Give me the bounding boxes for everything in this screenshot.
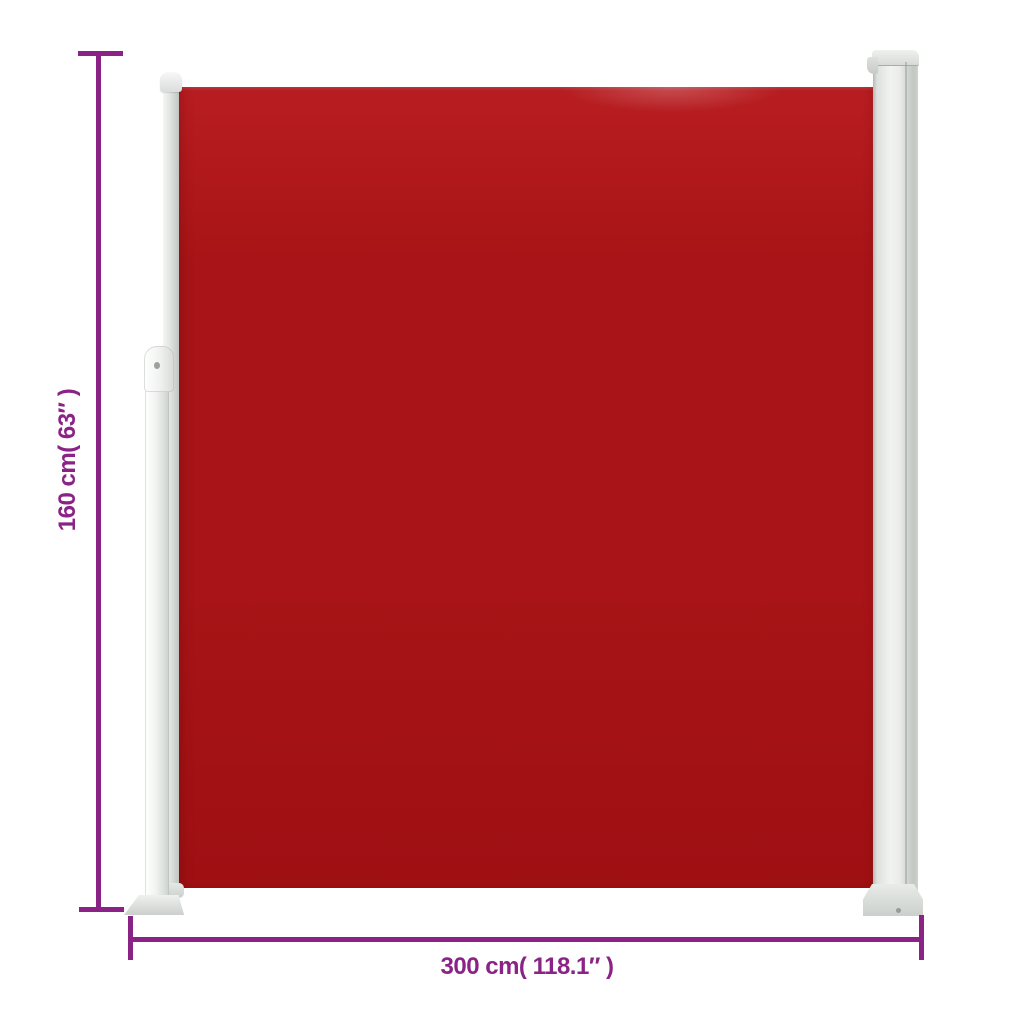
leading-edge-top-cap — [160, 72, 182, 92]
awning-fabric-panel — [178, 87, 873, 888]
bracket-hole — [154, 362, 160, 369]
height-dimension-cap-bottom — [79, 907, 124, 912]
cassette-top-flange — [867, 57, 878, 74]
support-post-base-plate — [124, 895, 186, 915]
cassette-base-foot — [863, 884, 923, 916]
width-dimension-cap-left — [128, 916, 133, 960]
width-dimension-cap-right — [919, 915, 924, 960]
height-dimension-cap-top — [78, 51, 123, 56]
width-dimension-label: 300 cm( 118.1″ ) — [441, 953, 614, 981]
width-dimension-line — [130, 937, 922, 942]
cassette-housing — [873, 52, 918, 905]
side-awning-dimension-diagram: 160 cm( 63″ ) 300 cm( 118.1″ ) — [0, 0, 1024, 1024]
cassette-screw — [896, 908, 901, 913]
support-post-bracket — [144, 346, 174, 392]
cassette-top-cap — [872, 50, 919, 66]
cassette-seam-line — [905, 62, 907, 890]
height-dimension-line — [96, 54, 101, 910]
support-post — [145, 378, 169, 900]
height-dimension-label: 160 cm( 63″ ) — [54, 389, 82, 531]
